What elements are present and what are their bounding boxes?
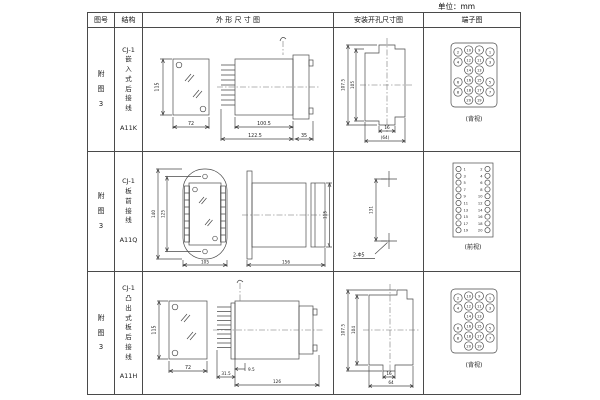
svg-text:8: 8 [457,90,460,94]
structure-label-r2: CJ-1 板 前 接 线 A11Q [115,152,143,272]
svg-text:8: 8 [457,336,460,340]
svg-text:9: 9 [478,48,481,52]
svg-text:3: 3 [464,174,466,178]
dim-cutout-w: 64 [388,380,394,385]
figure-label-r2: 附 图 3 [88,152,115,272]
terminal-cell-r1: 2 10 9 1 4 12 11 3 14 13 6 16 15 5 8 18 [424,28,520,152]
hatch-marks [181,314,196,340]
side-view [242,171,330,259]
svg-text:5: 5 [464,181,466,185]
svg-text:16: 16 [478,215,483,219]
dim-width: 72 [188,121,194,127]
svg-text:14: 14 [466,314,471,318]
dim-pins: 31.5 [221,371,231,376]
svg-text:8: 8 [480,187,483,191]
dim-depth: 156 [282,259,290,264]
hatch-marks [185,74,202,98]
svg-text:19: 19 [464,228,469,232]
svg-text:19: 19 [477,98,482,102]
dim-width: 105 [201,259,209,264]
hole-spec: 2-Φ5 [353,252,365,258]
screw-hole [176,62,182,68]
dim-height: 115 [152,325,158,334]
outline-cell-r3: 115 72 31.5 9.5 126 [143,272,334,394]
header-terminal: 端子图 [424,13,520,28]
outline-drawing-a11q: 140 125 105 115 156 [143,153,333,271]
terminals: 1 2 3 4 5 6 7 8 9 10 11 12 13 14 15 16 1 [456,166,490,232]
screw-hole [203,174,208,179]
svg-text:3: 3 [489,60,491,64]
svg-text:10: 10 [478,194,483,198]
svg-text:20: 20 [466,98,471,102]
outline-cell-r1: 115 72 100.5 122.5 35 [143,28,334,152]
view-label: (背视) [466,361,483,369]
svg-text:5: 5 [489,326,491,330]
structure-label-r1: CJ-1 嵌 入 式 后 接 线 A11K [115,28,143,152]
svg-text:9: 9 [478,294,481,298]
dim-depth: 126 [273,379,281,384]
svg-text:12: 12 [466,58,471,62]
svg-text:1: 1 [489,296,491,300]
svg-text:12: 12 [466,304,471,308]
outline-cell-r2: 140 125 105 115 156 [143,152,334,272]
dim-height: 115 [155,82,161,91]
figure-label-r1: 附 图 3 [88,28,115,152]
view-label: (背视) [466,115,483,123]
structure-label-r3: CJ-1 凸 出 式 板 后 接 线 A11H [115,272,143,394]
dim-inner-h: 104 [351,326,356,334]
dim-flange-h: 140 [151,209,156,217]
dim-body-h: 115 [323,210,328,218]
svg-text:10: 10 [466,294,471,298]
dimensions: 140 125 105 115 156 [151,169,332,267]
install-drawing-a11q: 131 2-Φ5 [335,153,423,271]
dimensions: 131 2-Φ5 [353,179,388,259]
svg-text:5: 5 [489,80,491,84]
front-view [183,169,227,259]
svg-text:11: 11 [464,201,469,205]
svg-text:18: 18 [478,221,483,225]
svg-text:13: 13 [477,314,482,318]
install-drawing-a11k: 107.5 105 16 (64) [335,29,423,151]
side-view [213,280,323,359]
dimensions: 107.5 105 16 (64) [340,45,405,143]
svg-text:2: 2 [457,50,459,54]
svg-text:20: 20 [478,228,483,232]
svg-text:3: 3 [489,306,491,310]
svg-text:11: 11 [477,304,482,308]
dim-slot-w: 16 [386,371,392,376]
svg-text:11: 11 [477,58,482,62]
dim-depth2: 122.5 [248,133,262,139]
dim-outer-h: 107.5 [340,324,345,336]
svg-text:17: 17 [464,221,469,225]
screw-hole [203,249,208,254]
svg-text:7: 7 [489,336,491,340]
svg-text:4: 4 [457,60,460,64]
svg-text:1: 1 [489,50,491,54]
dim-width: 72 [185,365,191,371]
terminal-cell-r3: 2 10 9 1 4 12 11 3 14 13 6 16 15 5 8 18 [424,272,520,394]
svg-text:15: 15 [477,78,482,82]
svg-text:16: 16 [466,78,471,82]
dim-hole-spacing: 131 [368,205,373,213]
svg-text:2: 2 [480,167,482,171]
svg-text:1: 1 [464,167,466,171]
terminal-drawing-a11k: 2 10 9 1 4 12 11 3 14 13 6 16 15 5 8 18 [425,29,519,151]
dim-depth1: 100.5 [257,121,271,127]
svg-text:7: 7 [464,187,466,191]
terminal-cell-r2: 1 2 3 4 5 6 7 8 9 10 11 12 13 14 15 16 1 [424,152,520,272]
svg-text:15: 15 [477,324,482,328]
svg-text:13: 13 [477,68,482,72]
view-label: (前视) [465,243,482,251]
svg-text:6: 6 [480,181,483,185]
hatch-marks [199,197,213,226]
svg-text:10: 10 [466,48,471,52]
terminal-pins [217,307,231,348]
svg-text:13: 13 [464,208,469,212]
svg-text:14: 14 [478,208,483,212]
install-cell-r2: 131 2-Φ5 [334,152,424,272]
svg-text:6: 6 [457,326,460,330]
screw-hole [172,304,178,310]
hole-marks [381,171,397,249]
header-fig-no: 图号 [88,13,115,28]
dim-gap: 9.5 [248,367,255,372]
svg-text:18: 18 [466,88,471,92]
svg-text:15: 15 [464,215,469,219]
install-cell-r3: 107.5 104 16 64 [334,272,424,394]
dim-outer-h: 107.5 [340,78,345,90]
svg-text:4: 4 [457,306,460,310]
outline-drawing-a11k: 115 72 100.5 122.5 35 [143,29,333,151]
dim-inner-h: 105 [350,80,355,88]
dim-inner-h: 125 [161,209,166,217]
terminals: 2 10 9 1 4 12 11 3 14 13 6 16 15 5 8 18 [454,292,494,350]
install-drawing-a11h: 107.5 104 16 64 [335,273,423,393]
outline-drawing-a11h: 115 72 31.5 9.5 126 [143,273,333,393]
terminal-drawing-a11q: 1 2 3 4 5 6 7 8 9 10 11 12 13 14 15 16 1 [425,153,519,271]
cutout-outline [369,290,413,371]
unit-label: 单位：mm [438,1,475,12]
svg-text:19: 19 [477,344,482,348]
terminals: 2 10 9 1 4 12 11 3 14 13 6 16 15 5 8 18 [454,45,494,103]
svg-text:4: 4 [480,174,483,178]
header-outline: 外 形 尺 寸 图 [143,13,334,28]
svg-text:17: 17 [477,334,482,338]
dimensions: 107.5 104 16 64 [340,290,413,388]
figure-label-r3: 附 图 3 [88,272,115,394]
svg-text:7: 7 [489,90,491,94]
document-page: 单位：mm 图号 结构 外 形 尺 寸 图 安装开孔尺寸图 端子图 附 图 3 … [0,0,600,400]
screw-hole [200,106,206,112]
dim-slot-w: 16 [384,125,390,130]
front-view [173,59,209,115]
header-structure: 结构 [115,13,143,28]
svg-text:2: 2 [457,296,459,300]
front-view [169,301,207,359]
svg-text:20: 20 [466,344,471,348]
svg-text:6: 6 [457,80,460,84]
spec-table: 图号 结构 外 形 尺 寸 图 安装开孔尺寸图 端子图 附 图 3 CJ-1 嵌… [87,12,521,395]
svg-text:9: 9 [464,194,467,198]
terminal-pins [221,65,235,105]
dim-cutout-w: (64) [380,135,389,140]
svg-text:16: 16 [466,324,471,328]
screw-hole [172,350,178,356]
svg-text:12: 12 [478,201,483,205]
side-view [217,37,319,119]
header-install: 安装开孔尺寸图 [334,13,424,28]
svg-text:14: 14 [466,68,471,72]
dim-cap: 35 [301,133,307,139]
svg-text:17: 17 [477,88,482,92]
svg-text:18: 18 [466,334,471,338]
install-cell-r1: 107.5 105 16 (64) [334,28,424,152]
terminal-drawing-a11h: 2 10 9 1 4 12 11 3 14 13 6 16 15 5 8 18 [425,273,519,393]
